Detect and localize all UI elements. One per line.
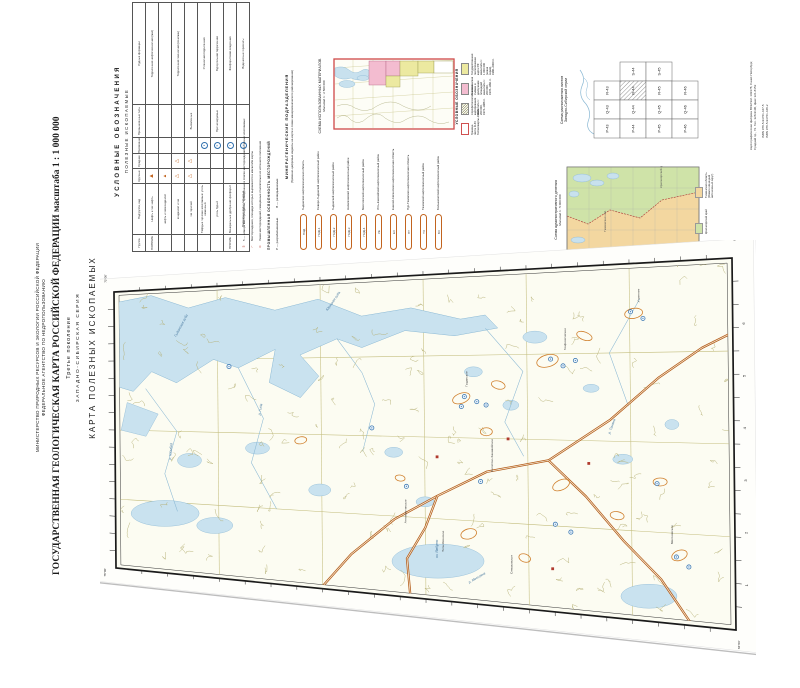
lake: [665, 419, 679, 429]
lake: [385, 447, 403, 457]
gas-deposit-dot: [575, 360, 576, 361]
sheet-index-cell-label: Q-44: [632, 105, 636, 113]
water-label: оз. Ямбуто: [435, 540, 439, 558]
gas-deposit-dot: [562, 365, 563, 366]
sheet-index-cell-label: R-43: [606, 86, 610, 94]
industrial-items: Р — разрабатываемыеВ — разведываемые: [275, 95, 283, 250]
legend-note-text: Знаки месторождений, смещённые относител…: [259, 141, 262, 241]
materials-legend-item: Государственная геологическая карта РФ м…: [461, 58, 553, 75]
sheet-index-title-block: Схема расположения листов Западно-Сибирс…: [560, 58, 573, 142]
minerals-legend-table: ГруппаПодгруппа, видКрупныеСредниеПроявл…: [132, 2, 250, 252]
minerageny-subtitle: (буквенно-цифровые индексы на карте и сх…: [290, 60, 294, 250]
edition-label: Третье поколение: [66, 120, 72, 575]
legend-table-cell: [211, 169, 224, 184]
lake: [245, 442, 269, 454]
materials-legend-items: Государственная геологическая карта РФ м…: [461, 58, 553, 135]
sheet-index-cell-label: S-45: [658, 67, 662, 75]
materials-swatch-hatch: [461, 103, 469, 115]
series-label: ЗАПАДНО-СИБИРСКАЯ СЕРИЯ: [76, 120, 81, 575]
gas-deposit-dot: [461, 406, 462, 407]
legend-table-cell: f: [224, 138, 237, 154]
legend-table-cell: △: [185, 169, 198, 184]
legend-table-row: ПРОЧИЕМинеральные удобрения: фосфоритfФо…: [224, 3, 237, 252]
legend-table-cell: Терригенная нефтегазоносная (мел): [146, 3, 159, 105]
sheet-index-cell-label: S-44: [632, 67, 636, 75]
printer-imprint: Картографическая фабрика ВСЕГЕИ. 199178,…: [750, 48, 759, 150]
lake: [309, 484, 331, 496]
legend-table-cell: △: [172, 154, 185, 169]
legend-table-cell: [159, 105, 172, 138]
materials-legend-text: Геологическая съёмка и доизучение площад…: [471, 78, 492, 95]
legend-table-cell: [159, 138, 172, 154]
lake: [131, 500, 199, 526]
materials-swatch-outline: [461, 123, 469, 135]
legend-table-header: Промышленные типы: [133, 105, 146, 138]
legend-table-cell: [172, 138, 185, 154]
legend-table-cell: [185, 3, 198, 105]
legend-table-cell: △: [185, 154, 198, 169]
legend-table-cell: газ горючий: [185, 184, 198, 235]
industrial-title: ПРОМЫШЛЕННАЯ ОСВОЕННОСТЬ МЕСТОРОЖДЕНИЙ: [267, 95, 275, 250]
legend-table-cell: Выявленные: [185, 105, 198, 138]
materials-legend-item: Геологическая съёмка и доизучение площад…: [461, 78, 553, 95]
sheet-index-cell-label: P-46: [684, 124, 688, 132]
legend-table-row: нефть и газоконденсат▲: [159, 3, 172, 252]
map-title: ГОСУДАРСТВЕННАЯ ГЕОЛОГИЧЕСКАЯ КАРТА РОСС…: [52, 120, 62, 575]
legend-table-cell: [198, 154, 211, 169]
legend-table-cell: конденсат и газ: [172, 184, 185, 235]
legend-table-header: Подгруппа, вид: [133, 184, 146, 235]
legend-table-cell: Терригенная газоносная (сеноман): [172, 3, 185, 105]
deposit-label: Мессояхское: [670, 525, 674, 544]
admin-region-label: Тюменская обл.: [603, 210, 607, 232]
sheet-index-cell-label: Q-46: [684, 105, 688, 113]
legend-table-cell: k: [198, 138, 211, 154]
materials-legend-text: Государственная геологическая карта РФ м…: [471, 58, 495, 75]
gas-deposit-dot: [550, 359, 551, 360]
deposit-label: Утреннее: [637, 288, 641, 302]
admin-legend-text: Тюменская область (Ямало-Ненецкий автоно…: [705, 168, 714, 198]
gas-deposit-dot: [657, 483, 658, 484]
legend-table-cell: Минеральные удобрения: фосфорит: [224, 184, 237, 235]
gas-deposit-dot: [570, 532, 571, 533]
materials-legend-item: Граница листа R-44 Госгеолкарты-1000/3: [461, 118, 553, 135]
minerageny-label: Гыданская нефтегазоносная область: [302, 68, 305, 210]
frame-corner-label: 68°00': [733, 240, 737, 241]
legend-table-cell: [172, 105, 185, 138]
gas-deposit-dot: [228, 366, 229, 367]
deposit-label: Антипаютинское: [404, 499, 408, 523]
legend-note-text: Месторождения, площади которых выражаютс…: [251, 151, 254, 241]
oil-deposit-symbol: [587, 462, 590, 465]
materials-legend-heading: УСЛОВНЫЕ ОБОЗНАЧЕНИЯ: [455, 58, 459, 135]
legend-table-cell: [185, 138, 198, 154]
legend-table-cell: [146, 138, 159, 154]
admin-region-label: Красноярский край: [659, 166, 663, 188]
gas-deposit-dot: [676, 556, 677, 557]
legend-table-cell: ▲: [146, 169, 159, 184]
legend-table-cell: Угленосная терригенная: [198, 3, 211, 105]
legend-table-cell: [159, 154, 172, 169]
legend-table-header-row: ГруппаПодгруппа, видКрупныеСредниеПроявл…: [133, 3, 146, 252]
admin-legend-swatch: [695, 187, 703, 198]
sheet-index-cell-label: P-44: [632, 124, 636, 132]
minerageny-item: ГЫДГыданская нефтегазоносная область: [296, 60, 311, 250]
gas-deposit-dot: [642, 318, 643, 319]
materials-scheme-title-block: СХЕМА ИСПОЛЬЗОВАННЫХ МАТЕРИАЛОВ Масштаб …: [318, 58, 332, 134]
legend-note-text: 5 — номера месторождений, приведённые в …: [243, 119, 246, 241]
materials-legend-text: Аэрофотогеологическое картирование масшт…: [471, 98, 486, 115]
admin-legend-text: Красноярский край: [705, 204, 708, 234]
map-type-label: КАРТА ПОЛЕЗНЫХ ИСКОПАЕМЫХ: [88, 120, 97, 575]
legend-table-cell: [146, 105, 159, 138]
legend-table-cell: Фосфоритовая осадочная: [224, 3, 237, 105]
legend-title: УСЛОВНЫЕ ОБОЗНАЧЕНИЯ: [115, 10, 121, 252]
admin-legend-swatch: [695, 223, 703, 234]
gas-deposit-dot: [406, 486, 407, 487]
materials-legend-text: Граница листа R-44 Госгеолкарты-1000/3: [471, 118, 480, 135]
materials-scheme-inset: [333, 58, 455, 130]
legend-table-row: Твёрдые горючие ископаемые: уголь каменн…: [198, 3, 211, 252]
legend-table-cell: [211, 154, 224, 169]
sheet-index-cell-label: P-43: [606, 124, 610, 132]
legend-table-header: Рудные формации: [133, 3, 146, 105]
legend-table-cell: [198, 105, 211, 138]
gas-deposit-dot: [464, 396, 465, 397]
admin-legend-item: Красноярский край: [695, 204, 739, 234]
frame-corner-label: 78°00': [103, 568, 107, 577]
materials-swatch-yellow: [461, 63, 469, 75]
deposit-label: Семаковское: [509, 555, 513, 574]
legend-table-cell: [224, 154, 237, 169]
lake: [583, 384, 599, 392]
admin-legend-items: Тюменская область (Ямало-Ненецкий автоно…: [695, 168, 739, 236]
materials-scheme-scale: Масштаб 1 : 2 500 000: [322, 58, 326, 134]
legend-table-cell: Буроугольная терригенная: [211, 3, 224, 105]
materials-legend-item: Аэрофотогеологическое картирование масшт…: [461, 98, 553, 115]
minerageny-title: МИНЕРАГЕНИЧЕСКИЕ ПОДРАЗДЕЛЕНИЯ: [284, 60, 289, 250]
deposit-label: Тота-Яхинское: [441, 531, 445, 552]
legend-table-cell: Водоносные горизонты: [237, 3, 250, 105]
legend-block: УСЛОВНЫЕ ОБОЗНАЧЕНИЯ ПОЛЕЗНЫЕ ИСКОПАЕМЫЕ…: [113, 10, 242, 252]
legend-table-row: конденсат и газ△△Терригенная газоносная …: [172, 3, 185, 252]
legend-table-header: Крупные: [133, 169, 146, 184]
sheet-index-cell-label: P-45: [658, 124, 662, 132]
materials-legend-block: УСЛОВНЫЕ ОБОЗНАЧЕНИЯ Государственная гео…: [455, 58, 559, 135]
industrial-item: В — разведываемые: [275, 179, 283, 208]
legend-table-cell: Прогнозируемые: [211, 105, 224, 138]
legend-table-cell: [146, 154, 159, 169]
main-map-sheet: Гыданская губаЮрацкая губар. Гыдар. Юриб…: [100, 240, 756, 664]
legend-table-cell: [159, 3, 172, 105]
gas-deposit-dot: [371, 427, 372, 428]
lake: [613, 454, 633, 464]
gas-deposit-dot: [480, 481, 481, 482]
sheet-index-cell-label: R-44: [632, 86, 636, 94]
legend-table-cell: Нефть и газ: нефть: [146, 184, 159, 235]
sheet-index-cell-label: R-46: [684, 86, 688, 94]
frame-corner-label: 72°00': [104, 274, 108, 283]
oil-deposit-symbol: [551, 567, 554, 570]
legend-table-header: Проявления: [133, 138, 146, 154]
frame-corner-label: 84°00': [737, 640, 741, 649]
legend-table-header: Средние: [133, 154, 146, 169]
legend-notes: 55 — номера месторождений, приведённые в…: [243, 95, 267, 250]
legend-table-row: уголь бурыйbПрогнозируемыеБуроугольная т…: [211, 3, 224, 252]
legend-table-cell: нефть и газоконденсат: [159, 184, 172, 235]
deposit-label: Гыданское: [464, 371, 468, 387]
gas-deposit-dot: [476, 401, 477, 402]
isbn-block: ISBN 978-5-93761-447-5 ISBN 978-5-93761-…: [762, 42, 772, 138]
scanned-geological-map-page: МИНИСТЕРСТВО ПРИРОДНЫХ РЕСУРСОВ И ЭКОЛОГ…: [0, 0, 800, 688]
legend-table-cell: Твёрдые горючие ископаемые: уголь каменн…: [198, 184, 211, 235]
gas-deposit-dot: [555, 524, 556, 525]
legend-note: ⊙Знаки месторождений, смещённые относите…: [259, 95, 267, 250]
lake: [523, 331, 547, 343]
legend-table-row: газ горючий△△Выявленные: [185, 3, 198, 252]
legend-subtitle: ПОЛЕЗНЫЕ ИСКОПАЕМЫЕ: [124, 10, 129, 252]
gas-deposit-dot: [688, 566, 689, 567]
lake: [197, 517, 233, 533]
isbn-line-2: ISBN 978-5-93761-448-2: [766, 42, 770, 138]
legend-table-cell: △: [172, 169, 185, 184]
legend-table-cell: [198, 169, 211, 184]
legend-notes-block: 55 — номера месторождений, приведённые в…: [243, 95, 283, 250]
sheet-index-cell-label: R-45: [658, 86, 662, 94]
sheet-index-inset: S-44S-45R-43R-44R-45R-46Q-43Q-44Q-45Q-46…: [574, 56, 702, 144]
materials-swatch-pink: [461, 83, 469, 95]
legend-table-cell: [224, 169, 237, 184]
gas-deposit-dot: [630, 311, 631, 312]
admin-legend-item: Тюменская область (Ямало-Ненецкий автоно…: [695, 168, 739, 198]
sheet-index-cell-label: Q-43: [606, 105, 610, 113]
oil-deposit-symbol: [436, 455, 439, 458]
legend-table-cell: b: [211, 138, 224, 154]
ministry-line-2: ФЕДЕРАЛЬНОЕ АГЕНТСТВО ПО НЕДРОПОЛЬЗОВАНИ…: [41, 120, 47, 575]
legend-table-row: ГОРЮЧИЕНефть и газ: нефть▲Терригенная не…: [146, 3, 159, 252]
gas-deposit-dot: [486, 404, 487, 405]
sheet-index-cell-label: Q-45: [658, 105, 662, 113]
legend-table-cell: уголь бурый: [211, 184, 224, 235]
legend-table-cell: [224, 105, 237, 138]
oil-deposit-symbol: [507, 437, 510, 440]
printer-line: Картографическая фабрика ВСЕГЕИ. 199178,…: [750, 48, 758, 150]
sheet-index-subtitle: Западно-Сибирской серии: [564, 58, 568, 142]
deposit-label: Солетско-Ханавейское: [490, 439, 494, 472]
admin-legend-block: Тюменская область (Ямало-Ненецкий автоно…: [695, 168, 745, 236]
deposit-label: Геофизическое: [563, 328, 567, 350]
lake: [621, 584, 677, 608]
legend-table-cell: ▲: [159, 169, 172, 184]
